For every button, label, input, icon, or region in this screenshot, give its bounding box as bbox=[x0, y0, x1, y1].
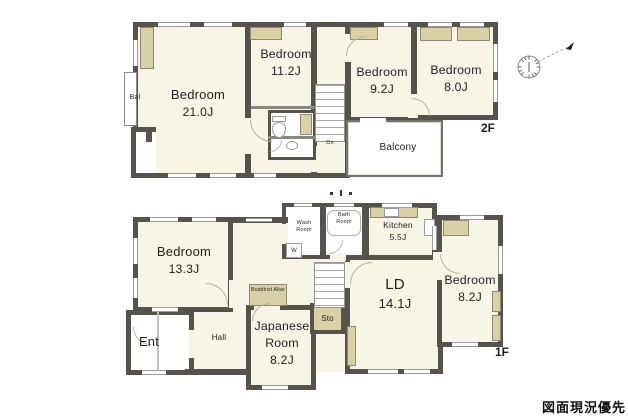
interior-wall bbox=[251, 106, 315, 109]
floor-plan-sheet: Bedroom 21.0J Bedroom 11.2J Bedroom 9.2J… bbox=[0, 0, 628, 420]
window bbox=[404, 369, 430, 374]
window bbox=[192, 217, 216, 222]
window bbox=[254, 173, 276, 178]
floor-label-1f: 1F bbox=[488, 345, 516, 359]
closet bbox=[420, 27, 452, 41]
north-compass-icon bbox=[504, 38, 584, 86]
closet bbox=[250, 27, 282, 40]
wall-stub bbox=[146, 127, 152, 142]
doorway bbox=[280, 224, 288, 244]
window bbox=[368, 369, 398, 374]
bedroom-21-label: Bedroom 21.0J bbox=[150, 86, 246, 121]
closet bbox=[457, 27, 490, 41]
window bbox=[428, 22, 452, 27]
kitchen-ld-opening bbox=[372, 261, 430, 272]
kitchen-label: Kitchen 5.5J bbox=[368, 220, 428, 244]
window bbox=[158, 22, 190, 27]
window bbox=[432, 226, 437, 250]
closet bbox=[347, 326, 356, 366]
toilet-shelf bbox=[300, 114, 312, 135]
washer-box: W bbox=[286, 243, 302, 258]
bedroom-11-label: Bedroom 11.2J bbox=[246, 46, 326, 80]
floor-label-2f: 2F bbox=[474, 121, 502, 135]
window bbox=[382, 203, 412, 208]
vent-mark bbox=[349, 192, 352, 195]
window bbox=[152, 307, 178, 312]
window bbox=[133, 40, 138, 66]
window bbox=[460, 22, 484, 27]
doorway bbox=[330, 253, 346, 261]
window bbox=[294, 203, 312, 207]
washbasin-icon bbox=[286, 141, 298, 150]
ld-label: LD 14.1J bbox=[352, 274, 438, 313]
vent-mark bbox=[340, 190, 342, 196]
corner-notch-2f bbox=[131, 127, 156, 178]
buddhist-altar-label: Buddhist Altar bbox=[249, 287, 287, 294]
stairs-2f bbox=[315, 84, 345, 142]
entrance-label: Ent bbox=[128, 333, 170, 351]
stairs-1f bbox=[314, 262, 345, 308]
hall-label: Hall bbox=[202, 332, 236, 343]
window bbox=[262, 385, 288, 390]
window bbox=[168, 173, 196, 178]
exterior-wall bbox=[185, 369, 250, 375]
window bbox=[246, 218, 272, 222]
closet bbox=[492, 315, 501, 341]
doorway bbox=[229, 280, 241, 308]
window bbox=[150, 217, 178, 222]
doorway bbox=[189, 330, 200, 358]
window bbox=[452, 342, 478, 347]
window bbox=[284, 22, 306, 27]
window bbox=[142, 370, 166, 375]
window bbox=[334, 203, 354, 207]
balcony-label: Balcony bbox=[358, 141, 438, 155]
closet bbox=[443, 220, 469, 236]
window bbox=[204, 22, 232, 27]
closet bbox=[140, 27, 154, 69]
kitchen-sink-icon bbox=[384, 208, 399, 217]
vent-mark bbox=[330, 192, 333, 195]
storage-label: Sto bbox=[310, 313, 345, 324]
bath-room-label: Bath Room bbox=[331, 212, 357, 227]
window bbox=[460, 215, 484, 220]
window bbox=[210, 173, 236, 178]
bedroom-9-label: Bedroom 9.2J bbox=[348, 64, 416, 98]
bedroom-8-label: Bedroom 8.0J bbox=[414, 62, 498, 96]
bedroom-8-1f-label: Bedroom 8.2J bbox=[437, 272, 503, 306]
bal-label: Bal bbox=[123, 93, 147, 103]
drawing-priority-note: 図面現況優先 bbox=[542, 397, 626, 416]
bedroom-13-label: Bedroom 13.3J bbox=[138, 243, 230, 278]
window bbox=[384, 22, 408, 27]
window bbox=[133, 278, 138, 298]
window bbox=[498, 246, 503, 274]
balcony-door-opening bbox=[360, 118, 386, 125]
wash-room-label: Wash Room bbox=[291, 220, 317, 235]
stairs-dn-label: Dn bbox=[314, 140, 346, 148]
japanese-room-label: Japanese Room 8.2J bbox=[251, 318, 313, 369]
